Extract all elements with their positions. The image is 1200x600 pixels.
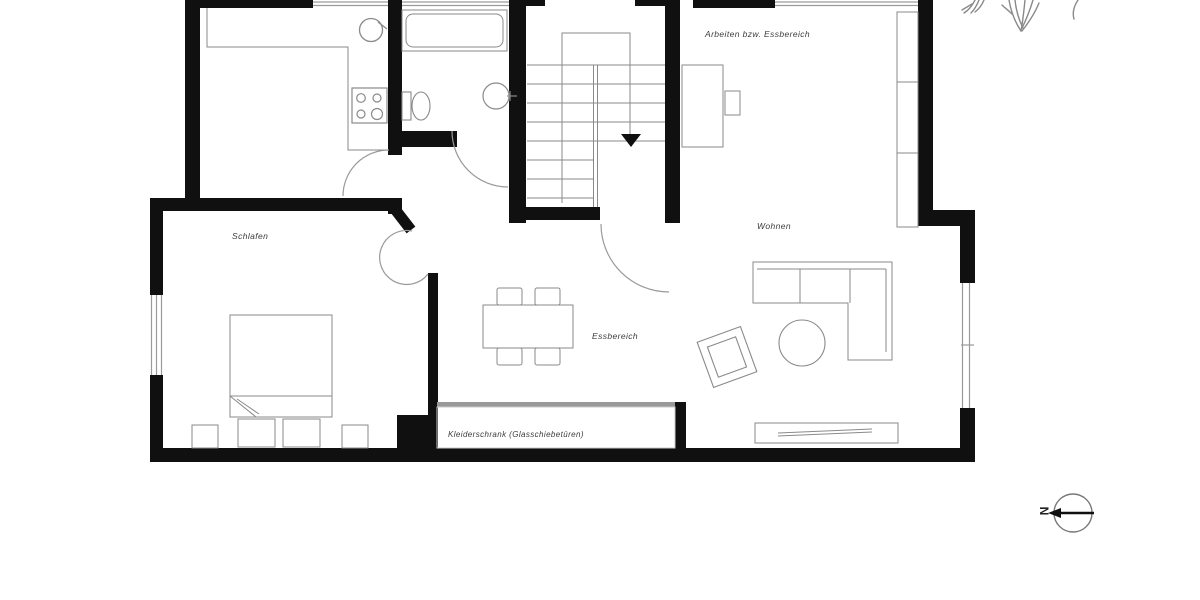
room-label-wohnen: Wohnen [757,221,791,231]
dining-chair [497,348,522,365]
bed [192,315,368,448]
bedroom-door-arc [380,230,428,284]
dining-table [483,288,573,365]
dining-chair [535,288,560,305]
nightstand [192,425,218,448]
entry-door-arc [601,224,669,292]
room-label-schlafen: Schlafen [232,231,268,241]
dining-chair [535,348,560,365]
kitchen-counter [207,8,388,150]
coffee-table [779,320,825,366]
sliding-door-track [437,402,675,407]
desk [682,65,740,147]
nightstand [342,425,368,448]
kitchen-sink-icon [360,19,388,42]
dining-chair [497,288,522,305]
wardrobe-sliding-doors [437,402,675,448]
floor-plan: N Schlafen Essbereich Wohnen Arbeiten bz… [0,0,1200,600]
staircase-down-icon [527,33,665,207]
bookshelf [897,12,918,227]
floor-plan-drawing: N [0,0,1200,600]
toilet-icon [402,92,430,120]
bathroom-door-arc [452,131,508,187]
stove-icon [352,88,387,123]
sideboard [755,423,898,443]
kitchen-door-arc [343,150,389,196]
desk-chair [725,91,740,115]
tree-sketch [962,0,1078,31]
room-label-arbeiten: Arbeiten bzw. Essbereich [705,29,810,39]
compass-north-letter: N [1037,507,1051,516]
corner-sofa [753,262,892,360]
bathtub-icon [402,10,507,51]
pillow [238,419,275,447]
armchair [697,327,757,388]
pillow [283,419,320,447]
room-label-essbereich: Essbereich [592,331,638,341]
north-arrow: N [1037,494,1094,532]
room-label-kleiderschrank: Kleiderschrank (Glasschiebetüren) [448,430,584,439]
